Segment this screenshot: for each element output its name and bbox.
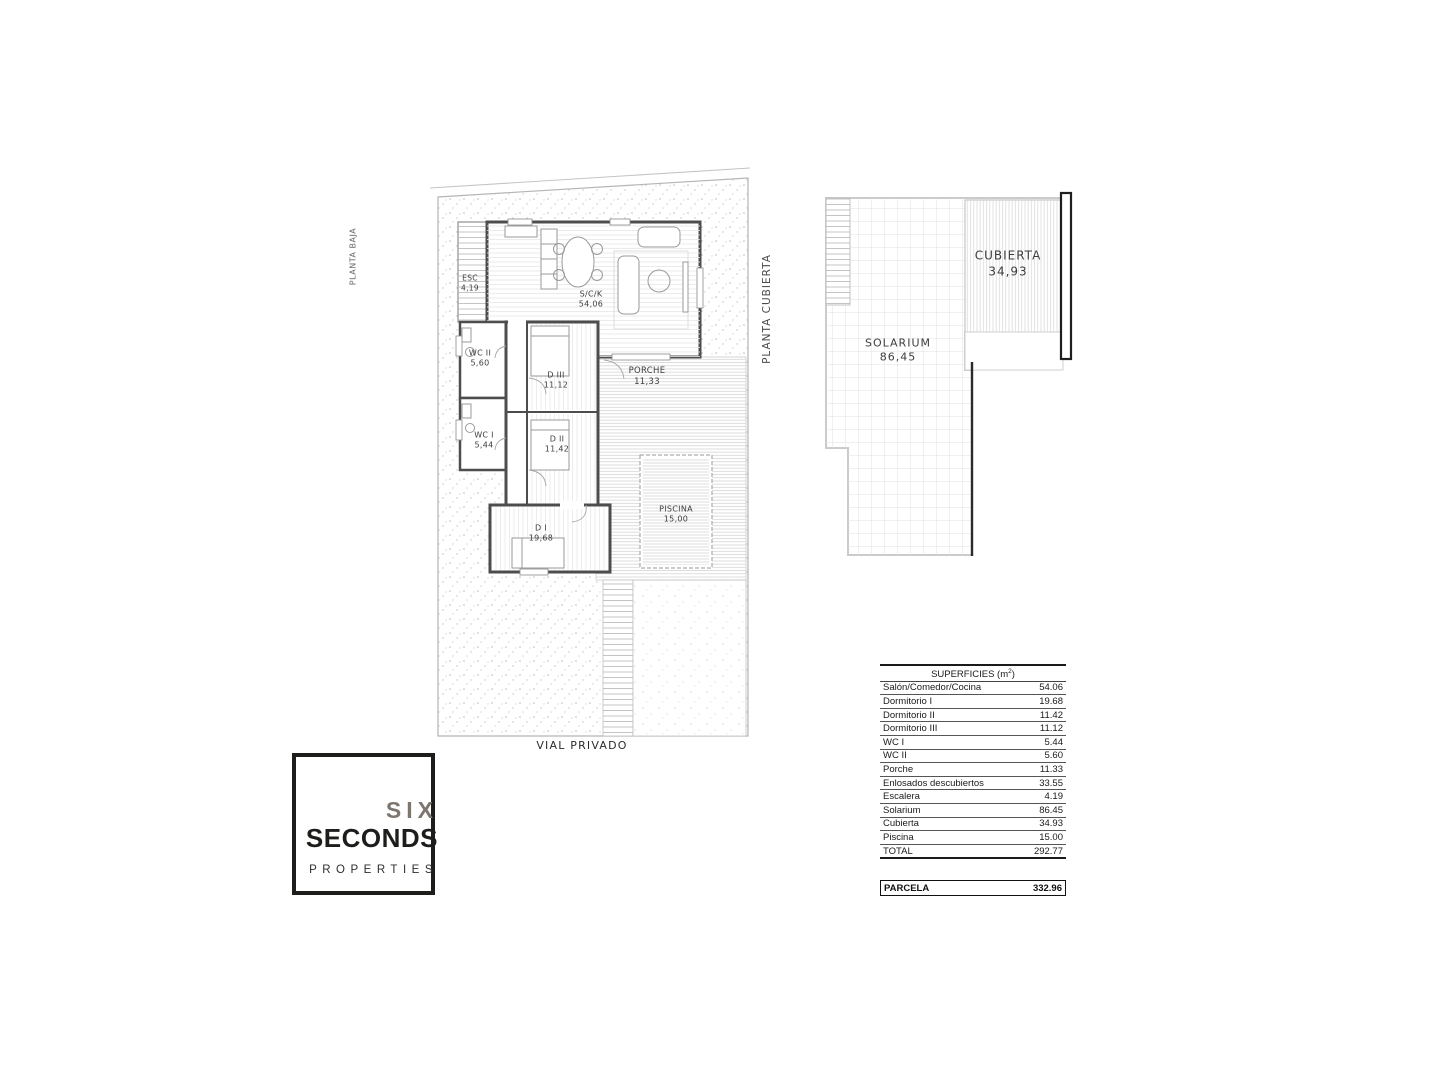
logo-word-properties: PROPERTIES	[288, 865, 438, 877]
table-row: WC II5.60	[880, 750, 1066, 764]
plan-title-planta-cubierta: PLANTA CUBIERTA	[761, 254, 773, 364]
table-row: Escalera4.19	[880, 790, 1066, 804]
room-label-d3: D III11,12	[544, 371, 568, 392]
table-row: Salón/Comedor/Cocina54.06	[880, 682, 1066, 696]
street-label: VIAL PRIVADO	[482, 739, 682, 752]
table-row: Cubierta34.93	[880, 818, 1066, 832]
room-label-esc: ESC4,19	[461, 273, 479, 293]
logo-word-six: SIX	[288, 799, 438, 822]
table-row: Enlosados descubiertos33.55	[880, 777, 1066, 791]
plan-title-planta-baja: PLANTA BAJA	[349, 217, 358, 297]
room-label-solarium: SOLARIUM86,45	[865, 337, 931, 366]
surfaces-table: SUPERFICIES (m2) Salón/Comedor/Cocina54.…	[880, 664, 1066, 859]
table-row: Dormitorio III11.12	[880, 722, 1066, 736]
surfaces-table-title: SUPERFICIES (m2)	[880, 666, 1066, 682]
room-label-sck: S/C/K54,06	[579, 290, 603, 311]
room-label-d2: D II11,42	[545, 435, 569, 456]
table-row: Solarium86.45	[880, 804, 1066, 818]
logo: SIX SECONDS PROPERTIES	[288, 799, 438, 877]
room-label-wc2: WC II5,60	[469, 349, 491, 370]
table-row: WC I5.44	[880, 736, 1066, 750]
room-label-wc1: WC I5,44	[474, 431, 494, 452]
parcela-box: PARCELA 332.96	[880, 880, 1066, 896]
table-row: Porche11.33	[880, 763, 1066, 777]
room-label-cubierta: CUBIERTA34,93	[975, 248, 1042, 279]
table-row: Dormitorio I19.68	[880, 695, 1066, 709]
logo-word-seconds: SECONDS	[288, 825, 438, 851]
site-plan	[430, 168, 750, 736]
room-label-d1: D I19,68	[529, 524, 553, 545]
plan-drawing	[0, 0, 1440, 1080]
table-row: Dormitorio II11.42	[880, 709, 1066, 723]
floor-plan-sheet: ESC4,19 S/C/K54,06 WC II5,60 D III11,12 …	[0, 0, 1440, 1080]
table-row-total: TOTAL292.77	[880, 845, 1066, 860]
room-label-porche: PORCHE11,33	[629, 366, 666, 388]
table-row: Piscina15.00	[880, 831, 1066, 845]
room-label-piscina: PISCINA15,00	[659, 505, 693, 526]
